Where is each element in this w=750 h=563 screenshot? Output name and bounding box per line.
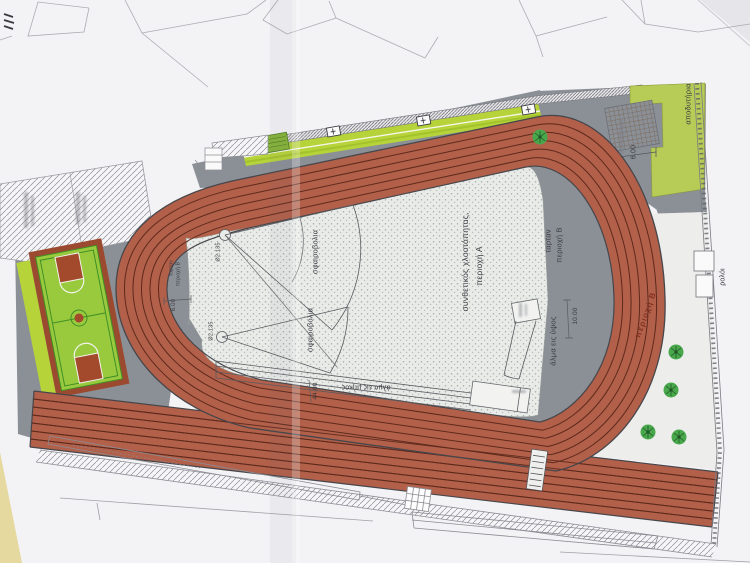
label-shot-put-diameter-1: Ø2.135 [216, 242, 222, 261]
label-shot-put-diameter-2: Ø2.135 [209, 321, 215, 340]
label-high-jump-dim: 10.00 [573, 307, 580, 324]
label-pergola-dim: 6.00 [631, 145, 638, 159]
paper-fold-shadow [270, 0, 300, 563]
label-tartan-left-line2: περιοχή Β [177, 262, 182, 286]
label-clock: ρολόι [720, 268, 727, 286]
plan-drawing [0, 0, 750, 563]
label-infield-line1: συνθετικός χλοοτάπητας, [461, 212, 470, 311]
illegible-label-smudge [620, 120, 623, 154]
tree-icon [641, 425, 656, 440]
label-high-jump: άλμα εις ύψος [549, 316, 557, 365]
label-tartan-left-dim: 6.00 [171, 299, 177, 311]
tree-icon [669, 345, 684, 360]
label-tartan-right-line1: ταρταν [544, 229, 552, 253]
illegible-label-smudge [512, 390, 526, 393]
label-changing-rooms: αποδυτήρια [684, 83, 692, 124]
illegible-label-smudge [76, 192, 80, 224]
illegible-label-smudge [519, 303, 522, 317]
tree-icon [664, 383, 679, 398]
label-long-jump: άλμα εις μήκος [342, 384, 391, 391]
label-infield-line2: περιοχή Α [475, 246, 484, 285]
illegible-label-smudge [83, 196, 86, 222]
label-tartan-right-line2: περιοχή Β [555, 227, 563, 262]
illegible-label-smudge [31, 196, 34, 226]
label-shot-put-2: σφαιροβολια [306, 308, 314, 352]
tree-icon [672, 430, 687, 445]
label-tartan-left-line1: ταρταν [170, 260, 175, 276]
label-shot-put-1: σφαιροβολια [311, 230, 319, 274]
illegible-label-smudge [525, 304, 527, 316]
site-plan-sheet: συνθετικός χλοοτάπητας, περιοχή Α ταρταν… [0, 0, 750, 563]
label-long-jump-dim: 44.00 [313, 382, 320, 399]
illegible-label-smudge [24, 192, 28, 228]
tree-icon [533, 130, 548, 145]
